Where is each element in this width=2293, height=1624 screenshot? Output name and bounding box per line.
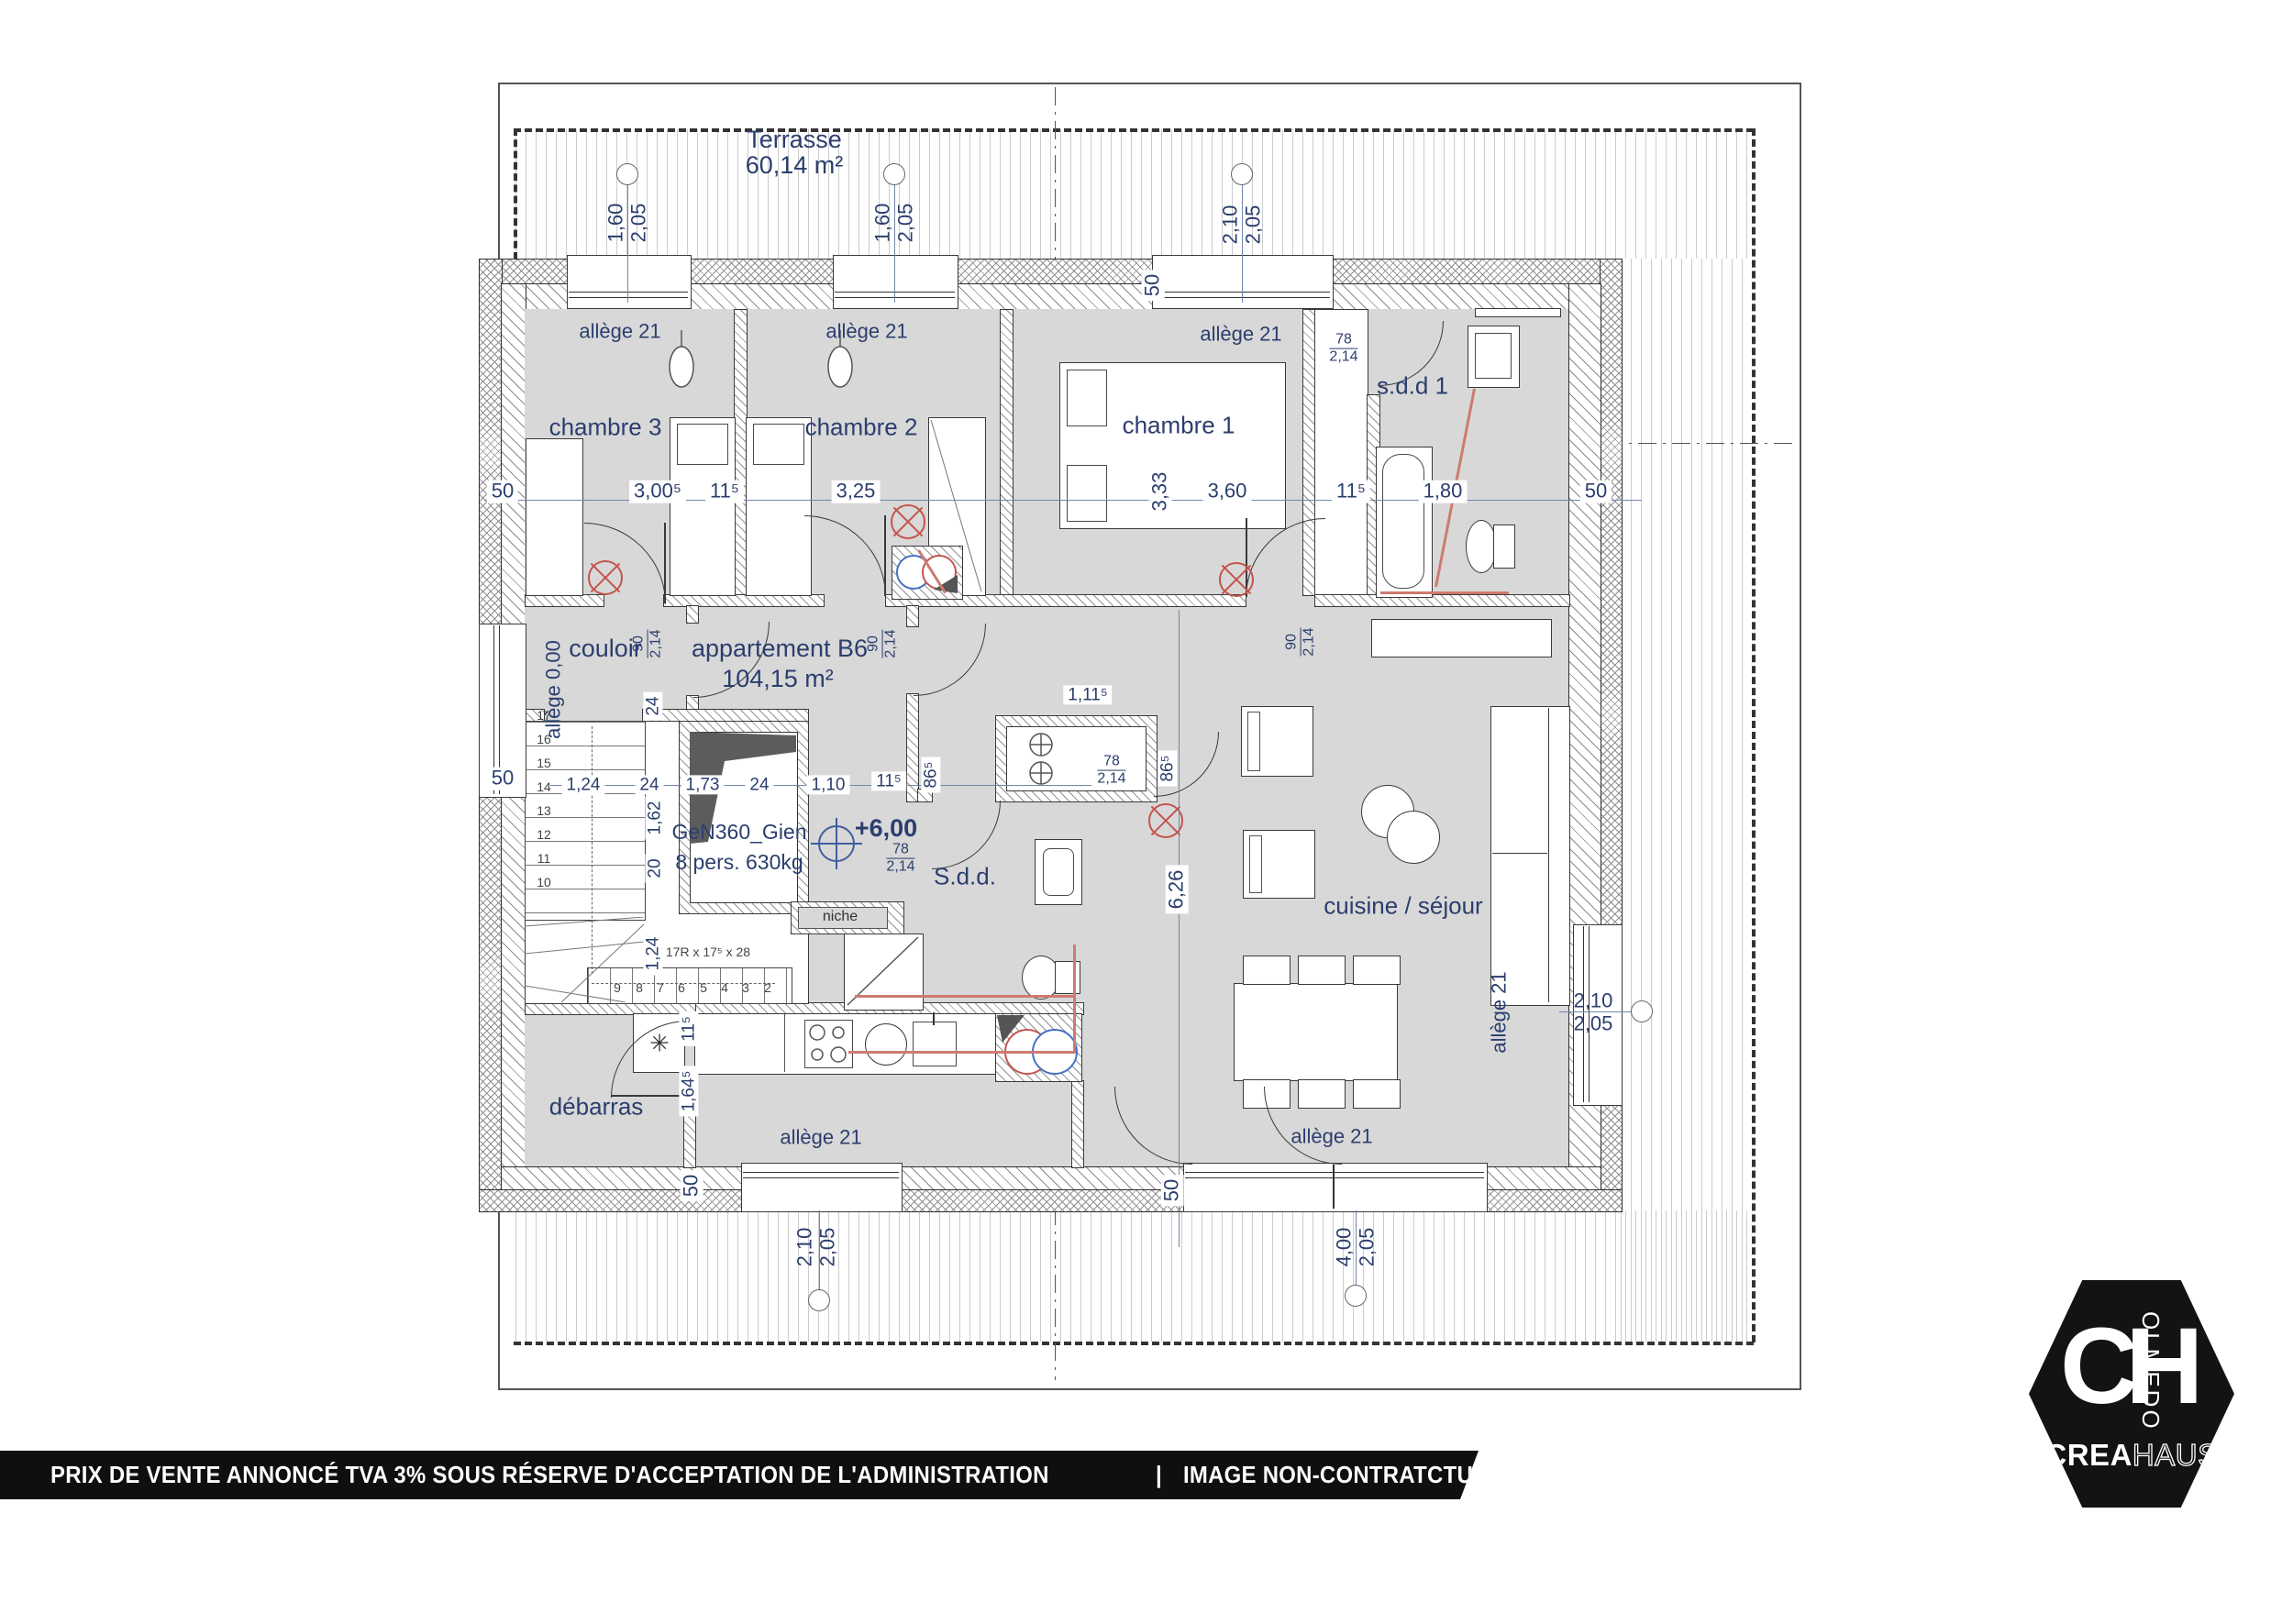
partition-couloir-hall-top [686, 605, 699, 624]
creahaus-logo: CH OLMEDO CREAHAUS [2029, 1280, 2234, 1508]
window-ch3-glazing [569, 292, 688, 298]
ch1-pillow-2 [1067, 465, 1107, 522]
window-living-south-mullion [1333, 1165, 1335, 1209]
door-leaf-ch3 [664, 523, 666, 603]
washer-dryer-icons [997, 1015, 1079, 1078]
dim-ch2-width: 3,25 [832, 481, 881, 503]
wall-kitchen-cuisine [1071, 1080, 1084, 1168]
level-marker-icon [818, 825, 855, 862]
apartment-area: 104,15 m² [722, 665, 834, 692]
wall-bedrooms-south-4 [1314, 594, 1570, 607]
ch3-radiator-icon [667, 330, 696, 391]
footer-separator-2: | [1580, 1461, 1587, 1489]
stair-num-4: 4 [721, 981, 728, 996]
stair-formula: 17R x 17⁵ x 28 [661, 945, 755, 960]
chair-top-1 [1243, 956, 1291, 985]
circle-w2 [883, 163, 905, 185]
logo-monogram: CH [2060, 1304, 2190, 1429]
dim-626: 6,26 [1166, 866, 1189, 914]
allege-label-6: allège 21 [1489, 971, 1512, 1053]
pipe-sdd-upper [855, 995, 1075, 998]
terrace-area: 60,14 m² [746, 151, 844, 179]
dim-1115: 1,11⁵ [1063, 685, 1112, 704]
sdd-basin [1043, 848, 1074, 896]
dim-ch1-width: 3,60 [1203, 481, 1252, 503]
socket-symbol-ch3-icon [588, 560, 623, 595]
stair-upper-flight [525, 721, 646, 921]
dim-sdd1-width: 1,80 [1419, 481, 1468, 503]
window-dim-ch3: 1,602,05 [604, 204, 649, 243]
armchair-1-arm [1247, 712, 1260, 771]
ch3-pillow [677, 424, 728, 465]
allege-label-4: allège 21 [780, 1127, 861, 1150]
dim-line-626 [1179, 610, 1180, 1247]
chair-top-3 [1353, 956, 1401, 985]
allege-label-2: allège 21 [825, 321, 907, 344]
dim-20: 20 [645, 854, 664, 882]
ch1-pillow-1 [1067, 370, 1107, 426]
window-ch1 [1152, 255, 1334, 309]
door-dim-annex: 782,14 [1097, 754, 1125, 788]
window-dim-living-south: 4,002,05 [1333, 1228, 1378, 1267]
dim-24-b: 24 [745, 775, 773, 794]
terrace-hatch-right [1621, 259, 1752, 1342]
window-dim-ch1: 2,102,05 [1219, 205, 1264, 245]
terrace-title: Terrasse [747, 126, 842, 153]
kitchen-divider-1 [784, 1014, 785, 1072]
chair-bottom-3 [1353, 1079, 1401, 1109]
ch3-closet [526, 438, 583, 596]
level-value: +6,00 [855, 814, 917, 842]
stair-num-3: 3 [742, 981, 749, 996]
door-dim-sdd1: 782,14 [1329, 332, 1357, 366]
dim-wall50-left: 50 [487, 481, 518, 503]
sdd1-basin [1475, 333, 1512, 379]
socket-symbol-ch2-icon [891, 504, 925, 539]
dim-24-c: 24 [643, 691, 662, 720]
window-ch2 [833, 255, 958, 309]
dim-wall50-left-2: 50 [487, 768, 518, 790]
terrace-boundary-left [514, 128, 517, 260]
window-debarras [741, 1163, 903, 1212]
dim-ch1-depth: 3,33 [1149, 468, 1172, 516]
pipe-kitchen [848, 1051, 1075, 1054]
allege-label-3: allège 21 [1200, 324, 1281, 347]
armchair-2-arm [1249, 835, 1262, 893]
sdd1-towel-radiator [1475, 308, 1561, 317]
room-label-chambre1: chambre 1 [1123, 412, 1235, 438]
door-leaf-ch2 [884, 515, 886, 596]
stair-num-14: 14 [537, 780, 551, 795]
pipe-vertical [1073, 945, 1076, 1054]
footer-url: WWW.CREAHAUS.LU [1608, 1461, 1838, 1489]
terrace-hatch-bottom [515, 1210, 1752, 1342]
sideboard [1371, 619, 1552, 657]
dim-865-b: 86⁵ [1158, 750, 1177, 786]
dim-110: 1,10 [807, 775, 850, 794]
stove-burners-icon [804, 1020, 851, 1066]
annex-burners-icon [1009, 729, 1073, 788]
footer-bar: PRIX DE VENTE ANNONCÉ TVA 3% SOUS RÉSERV… [0, 1451, 1479, 1499]
window-dim-debarras: 2,102,05 [793, 1228, 838, 1267]
kitchen-rect-sink-tap [933, 1012, 935, 1025]
apartment-title: appartement B6 [692, 635, 868, 662]
pipe-sdd1-bottom [1380, 591, 1509, 594]
window-dim-ch2: 1,602,05 [871, 204, 916, 243]
sofa-seat-split [1492, 853, 1547, 854]
coffee-table-2 [1387, 811, 1440, 864]
sdd-wc-cistern [1055, 961, 1080, 994]
stair-num-16: 16 [537, 733, 551, 747]
stair-num-9: 9 [614, 981, 621, 996]
dim-ch3-width: 3,00⁵ [629, 481, 686, 503]
window-living-south-glazing [1185, 1172, 1484, 1178]
sofa [1490, 706, 1570, 1006]
flyer-canvas: ✳ [0, 0, 2293, 1624]
room-label-sdd: S.d.d. [934, 863, 996, 889]
ch2-alcove-rings [893, 547, 959, 596]
dim-124: 1,24 [562, 775, 605, 794]
dim-1645: 1,64⁵ [679, 1066, 698, 1117]
stair-num-5: 5 [700, 981, 707, 996]
terrace-boundary-top [514, 128, 1754, 132]
footer-main-text: PRIX DE VENTE ANNONCÉ TVA 3% SOUS RÉSERV… [50, 1461, 1049, 1489]
logo-brand-crea: CREA [2044, 1438, 2132, 1472]
allege-label-5: allège 21 [1291, 1126, 1372, 1149]
stair-num-2: 2 [764, 981, 771, 996]
partition-ch2-ch1 [1000, 309, 1014, 596]
lift-cab-wedge [690, 732, 796, 901]
footer-secondary-text: IMAGE NON-CONTRATCTUELLE [1183, 1461, 1530, 1489]
circle-w6 [1631, 1000, 1653, 1022]
stair-num-15: 15 [537, 757, 551, 771]
room-label-sdd1: s.d.d 1 [1377, 372, 1448, 399]
room-label-cuisine: cuisine / séjour [1324, 892, 1482, 919]
dim-162: 1,62 [645, 797, 664, 840]
terrace-boundary-bottom [514, 1342, 1754, 1345]
room-label-debarras: débarras [549, 1093, 644, 1120]
logo-olmedo-vertical: OLMEDO [2136, 1311, 2165, 1431]
stem-w1 [627, 183, 628, 303]
lift-model: GeN360_Gien [671, 821, 806, 845]
window-debarras-glazing [743, 1172, 899, 1178]
terrace-boundary-right [1752, 128, 1756, 1342]
room-label-chambre3: chambre 3 [549, 414, 662, 440]
sdd1-bathtub-inner [1382, 454, 1424, 589]
stair-walkline-v [592, 726, 593, 974]
circle-w4 [808, 1289, 830, 1311]
door-dim-ch3: 902,14 [631, 629, 665, 657]
allege-label-1: allège 21 [579, 321, 660, 344]
kitchen-rect-sink [913, 1022, 957, 1066]
ch2-pillow [753, 424, 804, 465]
socket-symbol-ch1-icon [1219, 562, 1254, 597]
window-dim-living-east: 2,102,05 [1574, 989, 1613, 1034]
room-label-niche: niche [818, 909, 862, 925]
stair-num-8: 8 [636, 981, 643, 996]
dim-wall50-right: 50 [1580, 481, 1612, 503]
room-label-chambre2: chambre 2 [805, 414, 918, 440]
dim-wall50-top: 50 [1142, 270, 1165, 301]
sofa-back [1548, 708, 1549, 1002]
dim-124-v: 1,24 [643, 933, 662, 976]
stair-num-12: 12 [537, 828, 551, 843]
lift-capacity: 8 pers. 630kg [675, 851, 803, 875]
stair-num-11: 11 [537, 852, 551, 867]
stair-num-10: 10 [537, 876, 551, 890]
dim-173: 1,73 [681, 775, 725, 794]
stair-num-7: 7 [657, 981, 664, 996]
window-living-south [1183, 1163, 1488, 1212]
stem-w2 [894, 183, 895, 303]
dim-wall50-bottom-2: 50 [1161, 1175, 1184, 1206]
terrace-hatch-top [515, 129, 1752, 259]
kitchen-round-sink [865, 1023, 907, 1066]
logo-brand: CREAHAUS [2029, 1438, 2234, 1473]
dim-115-d: 11⁵ [679, 1011, 698, 1046]
circle-w1 [616, 163, 638, 185]
dim-part-115-b: 11⁵ [1332, 481, 1370, 503]
stair-num-13: 13 [537, 804, 551, 819]
partition-hall-vestibule-bottom [906, 693, 919, 802]
circle-w5 [1345, 1285, 1367, 1307]
dim-wall50-bottom-1: 50 [681, 1170, 703, 1201]
door-dim-entry: 902,14 [866, 629, 900, 657]
door-dim-ch1: 902,14 [1284, 627, 1318, 656]
door-dim-sdd: 782,14 [886, 842, 914, 876]
allege-label-couloir: allège 0,00 [543, 640, 566, 739]
dining-table [1234, 983, 1398, 1081]
dim-115-c: 11⁵ [871, 771, 906, 790]
logo-brand-haus: HAUS [2132, 1438, 2219, 1472]
dim-part-115-a: 11⁵ [705, 481, 744, 503]
footer-separator-1: | [1156, 1461, 1162, 1489]
dim-865-a: 86⁵ [921, 757, 940, 792]
sdd1-wc-bowl [1466, 520, 1497, 573]
dim-24-a: 24 [635, 775, 663, 794]
stair-num-17: 17 [537, 709, 551, 724]
circle-w3 [1231, 163, 1253, 185]
chair-top-2 [1298, 956, 1346, 985]
stair-num-6: 6 [678, 981, 685, 996]
window-ch3 [567, 255, 692, 309]
sdd1-wc-cistern [1493, 525, 1515, 569]
